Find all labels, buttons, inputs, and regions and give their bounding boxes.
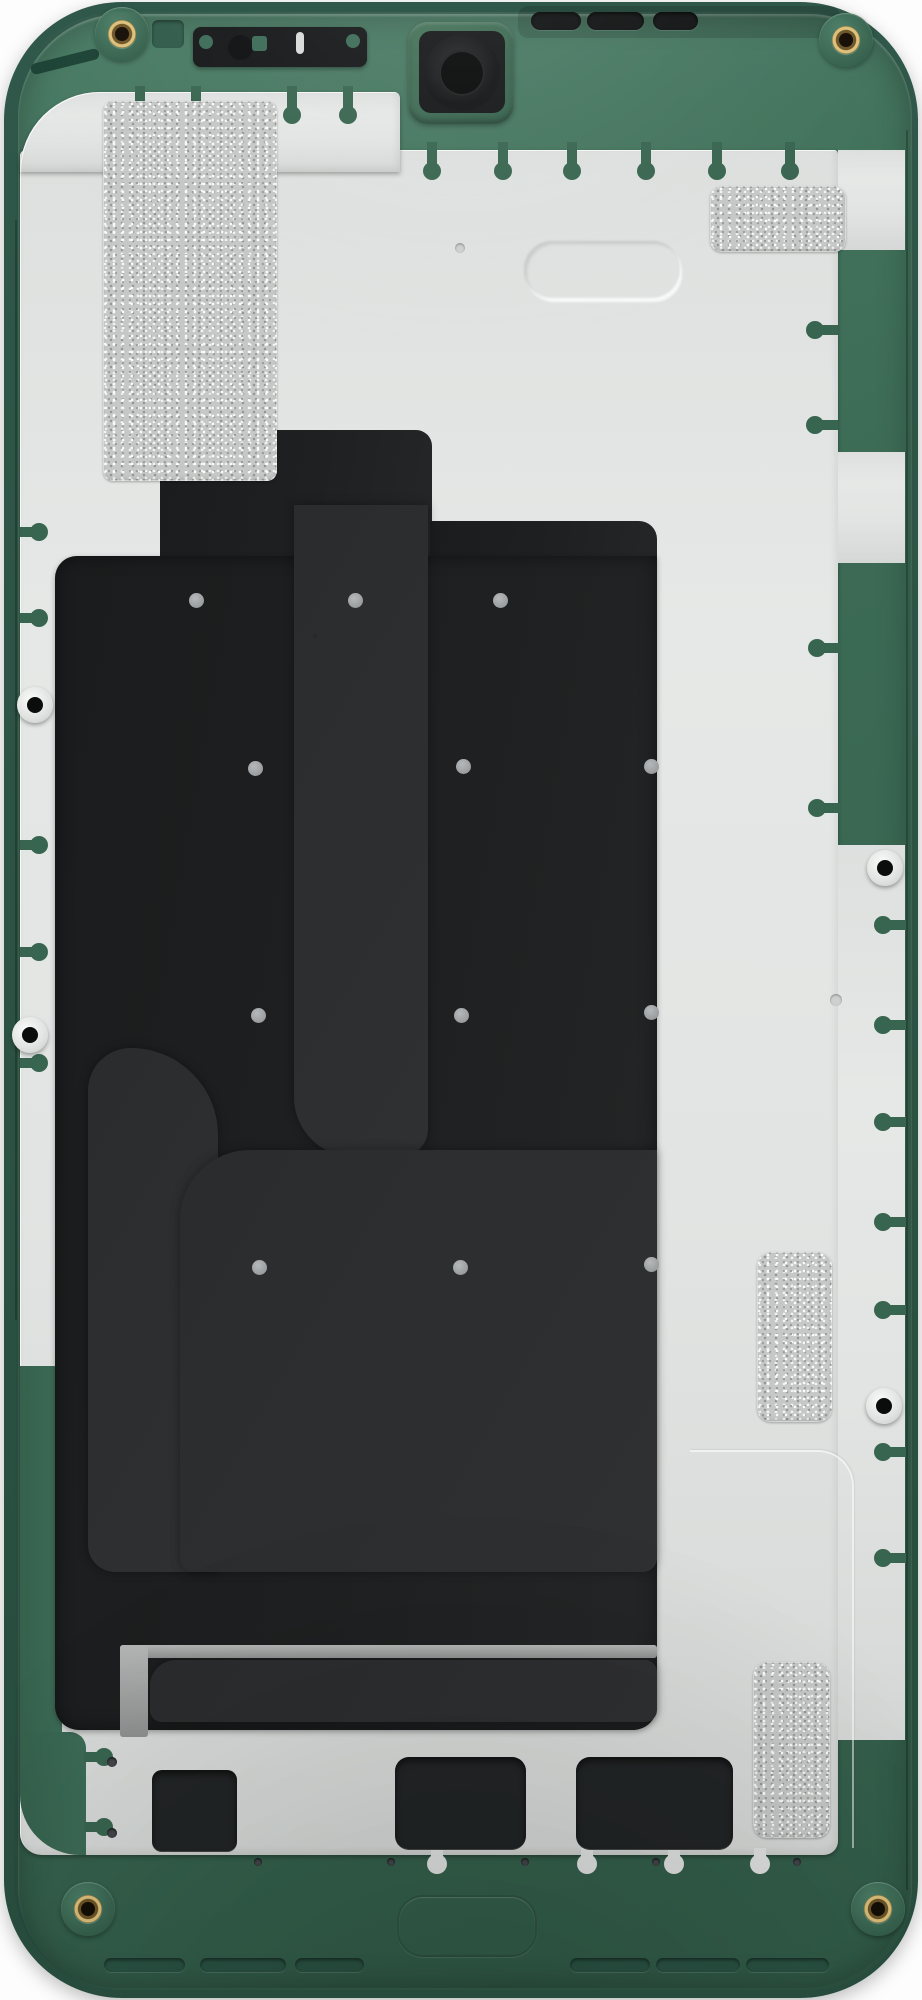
brass-screw-insert (832, 26, 860, 54)
screw-post-hole (877, 860, 893, 876)
plate-hole (521, 1858, 529, 1866)
panel-alignment-dot (493, 593, 508, 608)
jigsaw-tab-head (30, 943, 48, 961)
earpiece-pin-left (199, 35, 213, 49)
photo-canvas (0, 0, 922, 2000)
jigsaw-tab-head (874, 916, 892, 934)
jigsaw-tab-head (806, 321, 824, 339)
jigsaw-tab-head (808, 799, 826, 817)
jigsaw-tab-head (577, 1854, 597, 1874)
jigsaw-tab-head (781, 162, 799, 180)
flex-cable-bottom-band (150, 1660, 657, 1722)
jigsaw-tab-head (874, 1301, 892, 1319)
midplate-right-upper (838, 452, 905, 563)
earpiece-pin-right (346, 34, 360, 48)
jigsaw-tab-head (874, 1443, 892, 1461)
midplate-top-right (838, 150, 905, 250)
jigsaw-tab-head (30, 836, 48, 854)
panel-alignment-dot (644, 1257, 659, 1272)
earpiece-assembly (193, 27, 367, 67)
jigsaw-tab-head (427, 1854, 447, 1874)
bottom-vent-slot-6 (746, 1958, 829, 1972)
antenna-slot-2 (587, 12, 644, 30)
emi-patch-right-middle (757, 1252, 832, 1422)
bottom-vent-slot-2 (200, 1958, 286, 1972)
jigsaw-tab-stem (824, 803, 840, 813)
jigsaw-tab-stem (824, 643, 840, 653)
plate-hole (107, 1757, 117, 1767)
jigsaw-tab-head (874, 1549, 892, 1567)
speaker-box-outline (397, 1895, 537, 1957)
jigsaw-tab-head (423, 162, 441, 180)
screw-post-hole (22, 1027, 38, 1043)
bottom-cutout-right (576, 1757, 733, 1850)
brass-screw-insert (108, 20, 136, 48)
jigsaw-tab-head (494, 162, 512, 180)
screw-post-hole (27, 697, 43, 713)
jigsaw-tab-head (708, 162, 726, 180)
display-metal-edge-vertical (120, 1645, 148, 1737)
jigsaw-tab-head (874, 1016, 892, 1034)
panel-alignment-dot (644, 1005, 659, 1020)
frame-code-badge (525, 242, 681, 300)
jigsaw-tab-head (30, 523, 48, 541)
jigsaw-tab-head (339, 106, 357, 124)
brass-screw-insert (864, 1895, 892, 1923)
frame-pocket-square (152, 20, 184, 48)
jigsaw-tab-stem (890, 920, 906, 930)
jigsaw-tab-head (750, 1854, 770, 1874)
jigsaw-tab-head (283, 106, 301, 124)
jigsaw-tab-head (874, 1213, 892, 1231)
panel-alignment-dot (456, 759, 471, 774)
bottom-cutout-left (152, 1770, 237, 1852)
plate-hole (652, 1858, 660, 1866)
panel-alignment-dot (189, 593, 204, 608)
flex-cable-lower-run (180, 1150, 657, 1572)
brass-screw-insert (74, 1895, 102, 1923)
front-sensor-lens (228, 35, 253, 60)
jigsaw-tab-stem (890, 1553, 906, 1563)
frame-seam-left (15, 220, 17, 1320)
emi-patch-top-right (710, 186, 846, 252)
panel-alignment-dot (251, 1008, 266, 1023)
antenna-slot-3 (653, 12, 698, 30)
plate-hole (793, 1858, 801, 1866)
jigsaw-tab-stem (822, 420, 838, 430)
earpiece-speaker-slot (296, 32, 304, 54)
jigsaw-tab-stem (890, 1217, 906, 1227)
jigsaw-tab-stem (890, 1020, 906, 1030)
jigsaw-tab-stem (890, 1305, 906, 1315)
jigsaw-tab-head (637, 162, 655, 180)
jigsaw-tab-head (874, 1113, 892, 1131)
panel-alignment-dot (348, 593, 363, 608)
plate-hole (830, 994, 842, 1006)
panel-alignment-dot (252, 1260, 267, 1275)
antenna-slot-1 (531, 12, 581, 30)
jigsaw-tab-head (808, 639, 826, 657)
bottom-vent-slot-1 (104, 1958, 185, 1972)
screw-post-hole (876, 1398, 892, 1414)
frame-seam-right (906, 130, 908, 1890)
display-metal-edge-horizontal (120, 1645, 657, 1658)
jigsaw-tab-head (30, 609, 48, 627)
plate-hole (387, 1858, 395, 1866)
bottom-vent-slot-5 (656, 1958, 740, 1972)
front-camera-lens (439, 50, 485, 96)
jigsaw-tab-stem (822, 325, 838, 335)
emi-patch-top-left (103, 101, 277, 481)
jigsaw-tab-stem (890, 1447, 906, 1457)
panel-alignment-dot (644, 759, 659, 774)
jigsaw-tab-head (30, 1054, 48, 1072)
plate-hole (254, 1858, 262, 1866)
bottom-vent-slot-3 (295, 1958, 364, 1972)
emi-patch-right-bottom (753, 1662, 830, 1838)
panel-alignment-dot (453, 1260, 468, 1275)
jigsaw-tab-head (664, 1854, 684, 1874)
earpiece-green-block (252, 36, 267, 51)
plate-hole (455, 243, 465, 253)
bottom-vent-slot-4 (570, 1958, 650, 1972)
panel-alignment-dot (248, 761, 263, 776)
jigsaw-tab-head (563, 162, 581, 180)
jigsaw-tab-head (806, 416, 824, 434)
plate-hole (107, 1828, 117, 1838)
jigsaw-tab-stem (890, 1117, 906, 1127)
bottom-cutout-middle (395, 1757, 526, 1850)
panel-alignment-dot (454, 1008, 469, 1023)
